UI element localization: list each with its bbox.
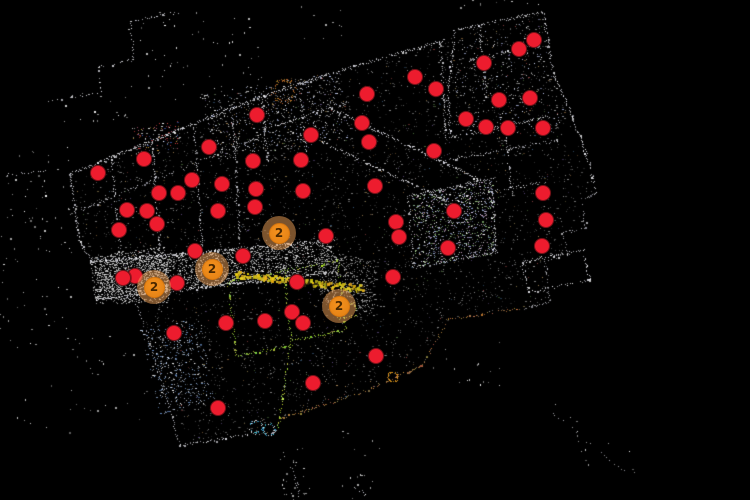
poi-marker[interactable]: [440, 240, 456, 256]
poi-marker[interactable]: [166, 325, 182, 341]
poi-marker[interactable]: [428, 81, 444, 97]
poi-marker[interactable]: [218, 315, 234, 331]
poi-marker[interactable]: [149, 216, 165, 232]
poi-marker[interactable]: [210, 400, 226, 416]
poi-marker[interactable]: [354, 115, 370, 131]
poi-marker[interactable]: [522, 90, 538, 106]
poi-marker[interactable]: [491, 92, 507, 108]
poi-marker[interactable]: [247, 199, 263, 215]
poi-marker[interactable]: [367, 178, 383, 194]
poi-marker[interactable]: [214, 176, 230, 192]
point-cloud-viewer: 2222: [0, 0, 750, 500]
poi-marker[interactable]: [535, 185, 551, 201]
poi-marker[interactable]: [210, 203, 226, 219]
poi-marker[interactable]: [458, 111, 474, 127]
poi-marker[interactable]: [318, 228, 334, 244]
poi-marker[interactable]: [385, 269, 401, 285]
cluster-marker[interactable]: 2: [195, 252, 229, 286]
poi-marker[interactable]: [391, 229, 407, 245]
cluster-count-label: 2: [208, 263, 216, 275]
poi-marker[interactable]: [119, 202, 135, 218]
poi-marker[interactable]: [359, 86, 375, 102]
cluster-marker[interactable]: 2: [137, 270, 171, 304]
poi-marker[interactable]: [535, 120, 551, 136]
poi-marker[interactable]: [446, 203, 462, 219]
poi-marker[interactable]: [368, 348, 384, 364]
cluster-count-label: 2: [335, 300, 343, 312]
poi-marker[interactable]: [361, 134, 377, 150]
poi-marker[interactable]: [295, 315, 311, 331]
poi-marker[interactable]: [511, 41, 527, 57]
cluster-count-label: 2: [275, 227, 283, 239]
poi-marker[interactable]: [388, 214, 404, 230]
poi-marker[interactable]: [151, 185, 167, 201]
poi-marker[interactable]: [534, 238, 550, 254]
poi-marker[interactable]: [476, 55, 492, 71]
poi-marker[interactable]: [257, 313, 273, 329]
cluster-marker[interactable]: 2: [322, 289, 356, 323]
cluster-count-badge: 2: [269, 223, 290, 244]
poi-marker[interactable]: [170, 185, 186, 201]
poi-marker[interactable]: [293, 152, 309, 168]
cluster-count-label: 2: [150, 281, 158, 293]
poi-marker[interactable]: [407, 69, 423, 85]
poi-marker[interactable]: [289, 274, 305, 290]
poi-marker[interactable]: [248, 181, 264, 197]
poi-marker[interactable]: [426, 143, 442, 159]
poi-marker[interactable]: [111, 222, 127, 238]
cluster-count-badge: 2: [329, 296, 350, 317]
poi-marker[interactable]: [249, 107, 265, 123]
poi-marker[interactable]: [295, 183, 311, 199]
poi-marker[interactable]: [90, 165, 106, 181]
cluster-count-badge: 2: [144, 277, 165, 298]
cluster-count-badge: 2: [202, 259, 223, 280]
poi-marker[interactable]: [184, 172, 200, 188]
cluster-marker[interactable]: 2: [262, 216, 296, 250]
poi-marker[interactable]: [303, 127, 319, 143]
poi-marker[interactable]: [538, 212, 554, 228]
poi-marker[interactable]: [136, 151, 152, 167]
point-cloud-map-canvas[interactable]: [0, 0, 750, 500]
poi-marker[interactable]: [115, 270, 131, 286]
poi-marker[interactable]: [169, 275, 185, 291]
poi-marker[interactable]: [478, 119, 494, 135]
poi-marker[interactable]: [500, 120, 516, 136]
poi-marker[interactable]: [245, 153, 261, 169]
poi-marker[interactable]: [305, 375, 321, 391]
poi-marker[interactable]: [201, 139, 217, 155]
poi-marker[interactable]: [526, 32, 542, 48]
poi-marker[interactable]: [235, 248, 251, 264]
